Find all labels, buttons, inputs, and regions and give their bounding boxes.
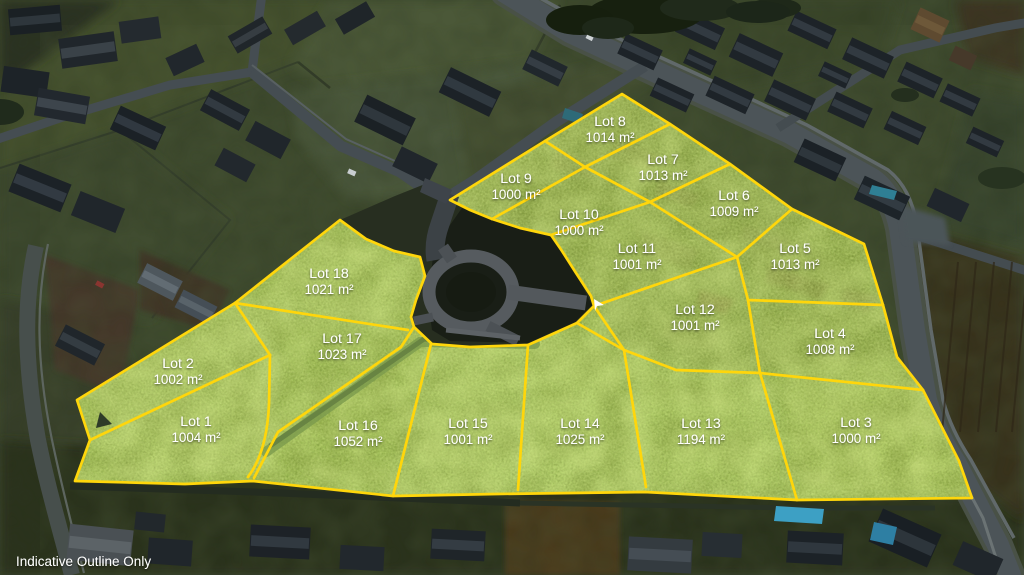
svg-text:Lot 13: Lot 13 [681, 416, 721, 432]
svg-text:1021 m²: 1021 m² [304, 282, 354, 297]
svg-text:1194 m²: 1194 m² [677, 432, 726, 447]
svg-text:Lot 16: Lot 16 [338, 418, 378, 434]
svg-text:1000 m²: 1000 m² [554, 223, 604, 238]
svg-text:Lot 7: Lot 7 [647, 152, 679, 168]
svg-text:1009 m²: 1009 m² [709, 204, 759, 219]
svg-text:1001 m²: 1001 m² [443, 432, 493, 447]
svg-text:Lot 15: Lot 15 [448, 416, 488, 432]
svg-text:Lot 14: Lot 14 [560, 416, 600, 432]
svg-text:1000 m²: 1000 m² [491, 187, 541, 202]
svg-text:1001 m²: 1001 m² [670, 318, 720, 333]
svg-text:1002 m²: 1002 m² [153, 372, 203, 387]
svg-text:1023 m²: 1023 m² [317, 347, 367, 362]
svg-text:1052 m²: 1052 m² [333, 434, 383, 449]
svg-text:1014 m²: 1014 m² [585, 130, 635, 145]
svg-text:Lot 17: Lot 17 [322, 331, 362, 347]
svg-text:1001 m²: 1001 m² [612, 257, 662, 272]
svg-text:1025 m²: 1025 m² [555, 432, 605, 447]
svg-text:Lot 3: Lot 3 [840, 415, 872, 431]
svg-text:Lot 1: Lot 1 [180, 414, 212, 430]
svg-text:Lot 6: Lot 6 [718, 188, 750, 204]
svg-text:Lot 8: Lot 8 [594, 114, 626, 130]
svg-text:1013 m²: 1013 m² [638, 168, 688, 183]
svg-text:1000 m²: 1000 m² [831, 431, 881, 446]
svg-text:Lot 4: Lot 4 [814, 326, 846, 342]
svg-text:Lot 11: Lot 11 [618, 241, 657, 257]
svg-text:1004 m²: 1004 m² [171, 430, 221, 445]
svg-text:1013 m²: 1013 m² [770, 257, 820, 272]
svg-text:Lot 18: Lot 18 [309, 266, 349, 282]
svg-text:Indicative Outline Only: Indicative Outline Only [16, 554, 151, 569]
svg-text:1008 m²: 1008 m² [805, 342, 855, 357]
svg-text:Lot 9: Lot 9 [500, 171, 532, 187]
svg-text:Lot 5: Lot 5 [779, 241, 811, 257]
svg-text:Lot 10: Lot 10 [559, 207, 599, 223]
svg-text:Lot 2: Lot 2 [162, 356, 194, 372]
svg-text:Lot 12: Lot 12 [675, 302, 715, 318]
